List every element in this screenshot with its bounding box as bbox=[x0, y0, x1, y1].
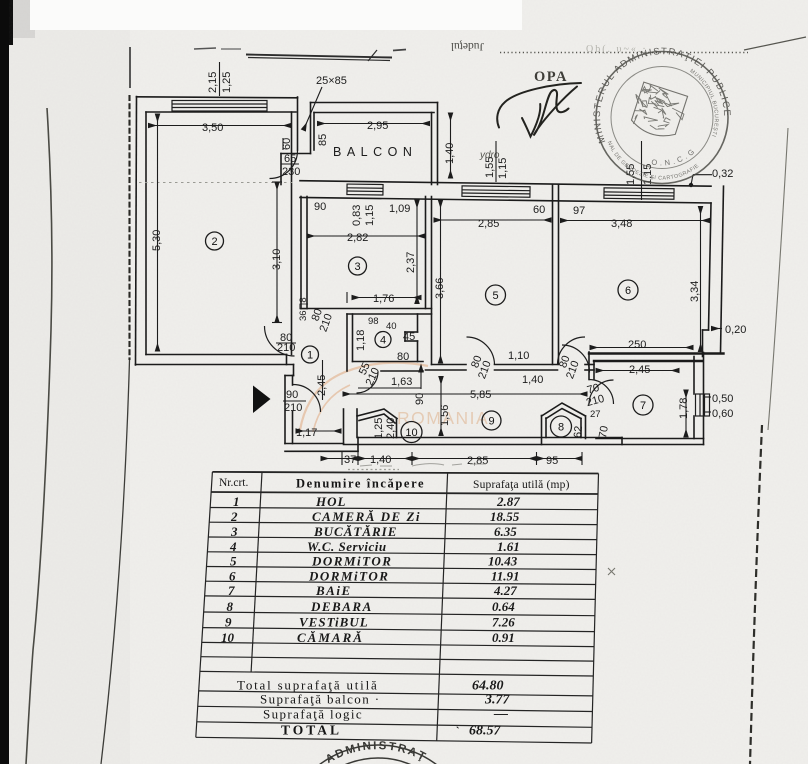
svg-text:95: 95 bbox=[546, 455, 558, 467]
svg-text:3.77: 3.77 bbox=[484, 693, 511, 708]
svg-text:10: 10 bbox=[405, 427, 417, 439]
svg-text:1: 1 bbox=[307, 350, 313, 362]
svg-text:1.61: 1.61 bbox=[497, 539, 520, 554]
svg-text:3,66: 3,66 bbox=[434, 278, 446, 299]
svg-text:Suprafaţa utilă (mp): Suprafaţa utilă (mp) bbox=[473, 479, 570, 491]
svg-text:25×85: 25×85 bbox=[316, 75, 347, 87]
svg-text:OPA: OPA bbox=[534, 69, 568, 85]
svg-text:1: 1 bbox=[233, 494, 240, 509]
svg-text:Denumire încăpere: Denumire încăpere bbox=[296, 477, 425, 491]
svg-text:60: 60 bbox=[281, 138, 293, 150]
svg-text:60: 60 bbox=[533, 204, 545, 216]
svg-text:1,40: 1,40 bbox=[444, 143, 456, 164]
svg-text:2: 2 bbox=[211, 236, 217, 248]
svg-text:62: 62 bbox=[572, 425, 585, 438]
svg-text:BAiE: BAiE bbox=[315, 583, 352, 598]
svg-text:TOTAL: TOTAL bbox=[281, 723, 342, 738]
svg-text:10.43: 10.43 bbox=[488, 554, 518, 569]
svg-text:1,76: 1,76 bbox=[373, 293, 394, 305]
svg-text:CĂMARĂ: CĂMARĂ bbox=[297, 630, 364, 645]
svg-text:2,40: 2,40 bbox=[385, 418, 397, 439]
svg-text:Nr.crt.: Nr.crt. bbox=[219, 477, 249, 489]
svg-text:`: ` bbox=[455, 724, 459, 738]
svg-text:45: 45 bbox=[403, 331, 415, 343]
svg-text:1,55: 1,55 bbox=[484, 157, 496, 178]
svg-text:250: 250 bbox=[628, 339, 646, 351]
svg-text:DEBARA: DEBARA bbox=[310, 599, 373, 614]
svg-text:9: 9 bbox=[225, 615, 232, 630]
svg-text:1,40: 1,40 bbox=[522, 374, 543, 386]
svg-text:0,60: 0,60 bbox=[712, 408, 733, 420]
svg-text:10: 10 bbox=[221, 630, 235, 645]
svg-text:37: 37 bbox=[344, 454, 356, 466]
svg-text:1,17: 1,17 bbox=[296, 427, 317, 439]
svg-text:64.80: 64.80 bbox=[472, 679, 504, 694]
svg-text:0.64: 0.64 bbox=[492, 599, 515, 614]
svg-text:0.91: 0.91 bbox=[492, 630, 515, 645]
svg-text:65: 65 bbox=[284, 153, 296, 165]
svg-text:1,25: 1,25 bbox=[373, 418, 385, 439]
svg-text:6: 6 bbox=[625, 285, 631, 297]
svg-text:230: 230 bbox=[282, 166, 300, 178]
svg-text:90: 90 bbox=[414, 393, 426, 405]
svg-text:36∏8: 36∏8 bbox=[298, 297, 309, 321]
svg-text:2,37: 2,37 bbox=[405, 252, 417, 273]
svg-text:4.27: 4.27 bbox=[493, 583, 517, 598]
svg-text:6: 6 bbox=[229, 569, 236, 584]
svg-text:9: 9 bbox=[488, 416, 494, 428]
svg-text:3,48: 3,48 bbox=[611, 218, 632, 230]
svg-text:97: 97 bbox=[573, 205, 585, 217]
svg-text:2,45: 2,45 bbox=[316, 375, 328, 396]
svg-text:2.87: 2.87 bbox=[496, 494, 520, 509]
svg-text:Total suprafaţă utilă: Total suprafaţă utilă bbox=[237, 678, 379, 693]
svg-text:BALCON: BALCON bbox=[333, 145, 417, 159]
svg-text:11.91: 11.91 bbox=[491, 569, 520, 584]
svg-text:CAMERĂ DE Zi: CAMERĂ DE Zi bbox=[312, 509, 421, 524]
svg-text:W.C. Serviciu: W.C. Serviciu bbox=[307, 539, 387, 554]
svg-text:1,63: 1,63 bbox=[391, 376, 412, 388]
svg-text:1,78: 1,78 bbox=[678, 398, 690, 419]
svg-text:2,95: 2,95 bbox=[367, 120, 388, 132]
svg-text:7.26: 7.26 bbox=[492, 615, 515, 630]
svg-text:0,32: 0,32 bbox=[712, 168, 733, 180]
svg-text:80: 80 bbox=[397, 351, 409, 363]
svg-text:3,10: 3,10 bbox=[271, 249, 283, 270]
svg-text:210: 210 bbox=[284, 402, 302, 414]
svg-text:27: 27 bbox=[590, 409, 601, 420]
svg-text:8: 8 bbox=[227, 599, 234, 614]
svg-text:0,20: 0,20 bbox=[725, 324, 746, 336]
svg-text:98: 98 bbox=[368, 316, 379, 327]
svg-text:68.57: 68.57 bbox=[469, 724, 502, 739]
svg-text:0,83: 0,83 bbox=[351, 205, 363, 226]
svg-text:90: 90 bbox=[314, 201, 326, 213]
svg-text:1,25: 1,25 bbox=[221, 72, 233, 93]
svg-text:18.55: 18.55 bbox=[490, 509, 520, 524]
svg-text:2,45: 2,45 bbox=[629, 364, 650, 376]
svg-text:90: 90 bbox=[286, 389, 298, 401]
svg-text:3: 3 bbox=[354, 261, 360, 273]
svg-text:1,09: 1,09 bbox=[389, 203, 410, 215]
svg-text:7: 7 bbox=[228, 583, 235, 598]
svg-text:1,15: 1,15 bbox=[364, 205, 376, 226]
svg-text:2,85: 2,85 bbox=[478, 218, 499, 230]
svg-text:70: 70 bbox=[597, 425, 611, 439]
svg-text:2: 2 bbox=[230, 509, 238, 524]
svg-text:85: 85 bbox=[317, 134, 329, 146]
svg-text:1,15: 1,15 bbox=[497, 158, 509, 179]
svg-text:DORMiTOR: DORMiTOR bbox=[308, 569, 389, 584]
svg-text:7: 7 bbox=[640, 400, 646, 412]
svg-text:2,82: 2,82 bbox=[347, 232, 368, 244]
svg-text:6.35: 6.35 bbox=[494, 524, 517, 539]
svg-text:3,50: 3,50 bbox=[202, 122, 223, 134]
svg-text:1,40: 1,40 bbox=[370, 454, 391, 466]
svg-text:DORMiTOR: DORMiTOR bbox=[311, 554, 392, 569]
svg-text:Suprafaţă balcon ·: Suprafaţă balcon · bbox=[260, 692, 381, 707]
svg-text:8: 8 bbox=[558, 422, 564, 434]
svg-text:1,18: 1,18 bbox=[355, 330, 367, 351]
svg-text:2,15: 2,15 bbox=[207, 72, 219, 93]
svg-text:3: 3 bbox=[230, 524, 238, 539]
svg-text:5,30: 5,30 bbox=[151, 230, 163, 251]
svg-text:BUCĂTĂRIE: BUCĂTĂRIE bbox=[313, 524, 397, 539]
svg-text:4: 4 bbox=[229, 539, 237, 554]
svg-text:5,85: 5,85 bbox=[470, 389, 491, 401]
svg-text:4: 4 bbox=[380, 335, 386, 347]
svg-text:5: 5 bbox=[492, 290, 498, 302]
svg-text:5: 5 bbox=[230, 554, 237, 569]
svg-text:3,34: 3,34 bbox=[689, 281, 701, 302]
svg-text:0,50: 0,50 bbox=[712, 393, 733, 405]
svg-text:1,10: 1,10 bbox=[508, 350, 529, 362]
svg-text:—: — bbox=[493, 707, 508, 722]
svg-text:Judeţul: Judeţul bbox=[451, 40, 484, 52]
svg-text:210: 210 bbox=[277, 342, 295, 354]
svg-text:Suprafaţă logic: Suprafaţă logic bbox=[263, 707, 363, 722]
svg-text:2,85: 2,85 bbox=[467, 455, 488, 467]
svg-text:HOL: HOL bbox=[315, 494, 346, 509]
svg-text:VESTiBUL: VESTiBUL bbox=[299, 615, 369, 630]
svg-text:1,56: 1,56 bbox=[439, 405, 451, 426]
svg-text:40: 40 bbox=[386, 321, 397, 332]
